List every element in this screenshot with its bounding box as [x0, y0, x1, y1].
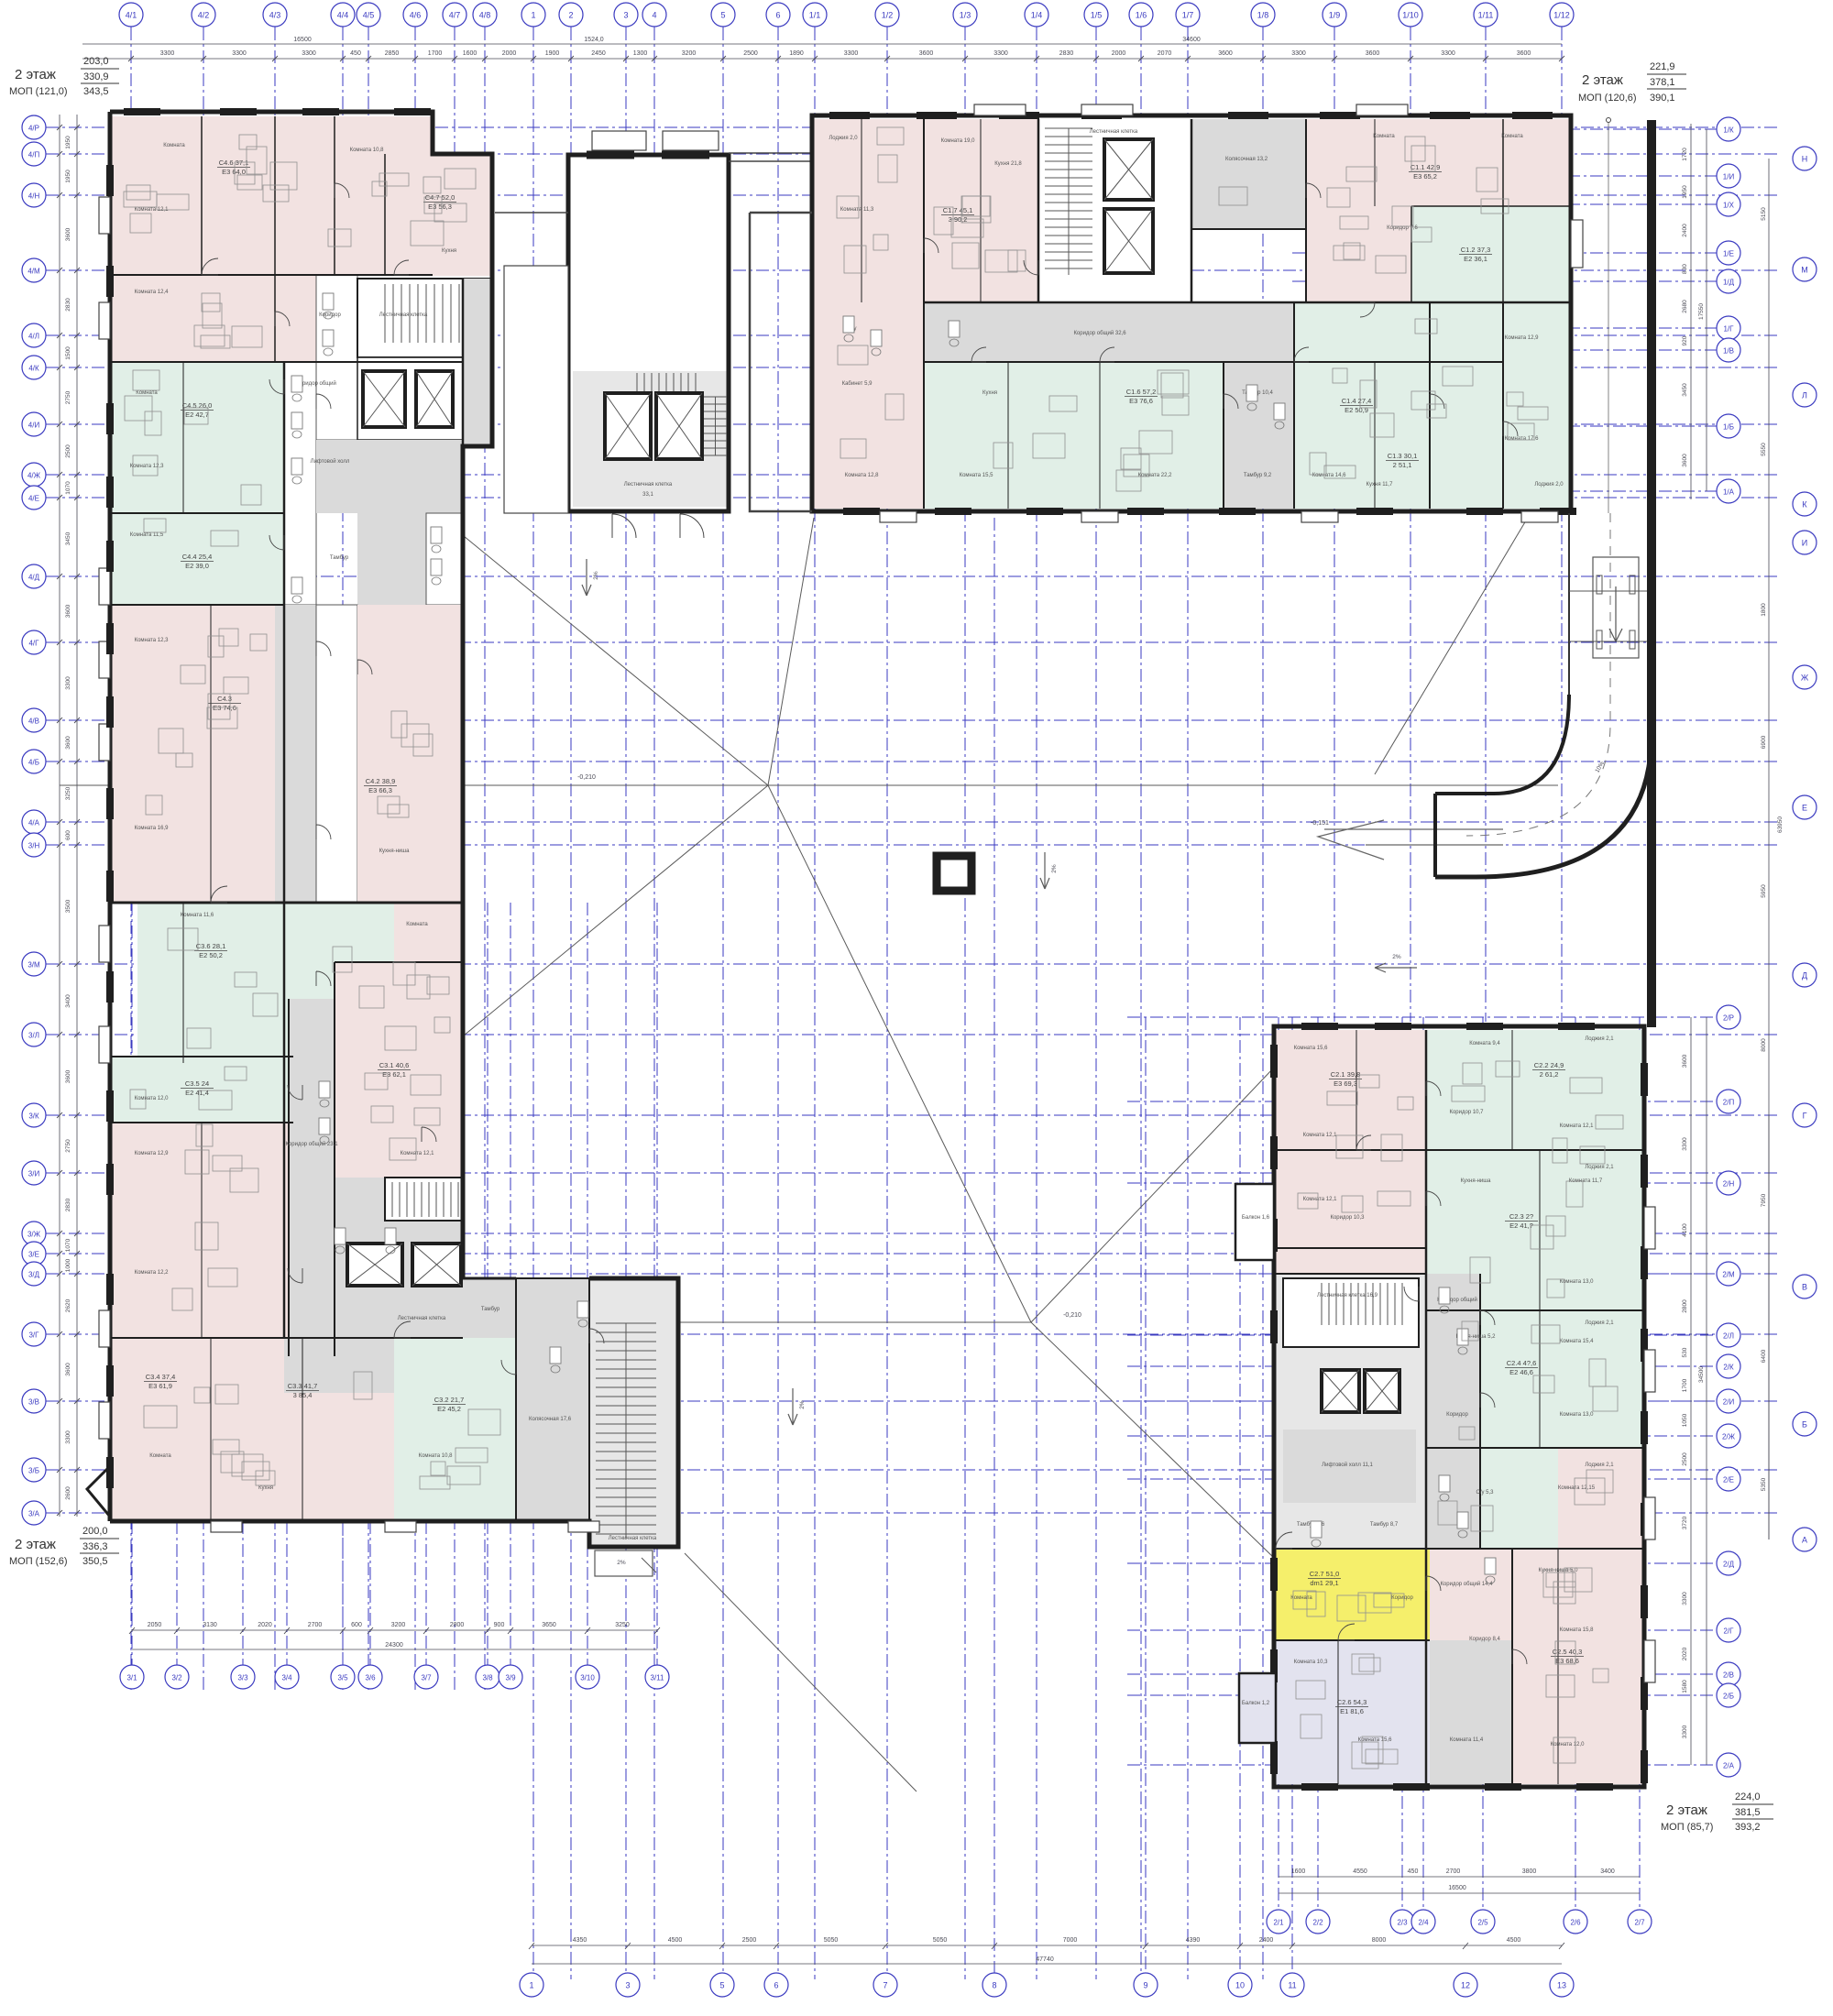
svg-text:С3.6 28,1: С3.6 28,1 — [196, 942, 226, 950]
svg-text:12: 12 — [1461, 1981, 1470, 1990]
svg-text:Комната 9,4: Комната 9,4 — [1469, 1041, 1500, 1046]
svg-text:Комната: Комната — [1290, 1595, 1312, 1601]
svg-text:2000: 2000 — [1112, 50, 1126, 57]
svg-text:3/Н: 3/Н — [28, 842, 40, 850]
svg-text:Е3 61,9: Е3 61,9 — [148, 1382, 172, 1390]
svg-text:3300: 3300 — [993, 50, 1008, 57]
svg-text:Комната 14,6: Комната 14,6 — [1312, 473, 1347, 478]
svg-text:Комната 12,0: Комната 12,0 — [1551, 1742, 1586, 1748]
svg-text:8000: 8000 — [1372, 1937, 1387, 1944]
svg-text:7950: 7950 — [1761, 1193, 1767, 1207]
svg-text:3300: 3300 — [232, 50, 247, 57]
svg-text:2070: 2070 — [1158, 50, 1172, 57]
svg-text:5550: 5550 — [1761, 443, 1767, 456]
svg-text:3600: 3600 — [1366, 50, 1380, 57]
svg-text:390,1: 390,1 — [1650, 93, 1675, 104]
svg-text:С1.2 37,3: С1.2 37,3 — [1461, 246, 1491, 254]
svg-text:С2.6 54,3: С2.6 54,3 — [1337, 1698, 1367, 1706]
svg-text:Комната 22,2: Комната 22,2 — [1138, 473, 1173, 478]
svg-text:4350: 4350 — [573, 1937, 587, 1944]
svg-text:1/9: 1/9 — [1329, 11, 1341, 20]
svg-text:3300: 3300 — [844, 50, 859, 57]
svg-text:1950: 1950 — [65, 170, 71, 183]
svg-text:3300: 3300 — [65, 676, 71, 690]
svg-text:1890: 1890 — [789, 50, 804, 57]
svg-text:3400: 3400 — [1600, 1868, 1615, 1875]
svg-text:К: К — [1802, 500, 1807, 509]
svg-text:2%: 2% — [617, 1560, 626, 1566]
svg-text:3600: 3600 — [919, 50, 934, 57]
svg-text:Коридор 8,4: Коридор 8,4 — [1469, 1637, 1500, 1642]
svg-text:Ж: Ж — [1801, 674, 1809, 683]
svg-text:3600: 3600 — [1517, 50, 1531, 57]
svg-text:1070: 1070 — [65, 481, 71, 495]
svg-text:2450: 2450 — [591, 50, 606, 57]
svg-text:МОП (85,7): МОП (85,7) — [1661, 1822, 1713, 1833]
svg-text:3250: 3250 — [615, 1622, 630, 1628]
svg-text:Б: Б — [1802, 1420, 1807, 1430]
svg-text:3/8: 3/8 — [482, 1674, 493, 1682]
svg-text:3300: 3300 — [1291, 50, 1306, 57]
svg-text:2400: 2400 — [1259, 1937, 1274, 1944]
svg-text:1300: 1300 — [633, 50, 648, 57]
svg-text:3/3: 3/3 — [237, 1674, 248, 1682]
svg-text:3: 3 — [625, 1981, 630, 1990]
svg-text:1/7: 1/7 — [1182, 11, 1194, 20]
svg-text:4/Ж: 4/Ж — [27, 472, 41, 480]
svg-text:Лоджия 2,1: Лоджия 2,1 — [1585, 1463, 1614, 1468]
svg-text:3600: 3600 — [65, 1363, 71, 1376]
svg-text:Комната 11,6: Комната 11,6 — [181, 913, 214, 918]
svg-text:24300: 24300 — [385, 1642, 403, 1649]
svg-text:4/Р: 4/Р — [28, 125, 39, 133]
svg-text:2/М: 2/М — [1722, 1271, 1735, 1279]
svg-text:С4.2 38,9: С4.2 38,9 — [366, 777, 396, 785]
svg-text:М: М — [1801, 266, 1808, 275]
svg-text:4/Д: 4/Д — [28, 574, 40, 582]
svg-text:1720: 1720 — [1682, 148, 1688, 161]
svg-text:С1.4 27,4: С1.4 27,4 — [1342, 397, 1372, 405]
svg-text:С3.1 40,6: С3.1 40,6 — [379, 1061, 410, 1069]
svg-text:Комната 12,3: Комната 12,3 — [135, 638, 170, 643]
svg-text:Коридор: Коридор — [1446, 1412, 1468, 1418]
svg-text:450: 450 — [1408, 1868, 1419, 1875]
svg-text:4/8: 4/8 — [479, 11, 491, 20]
svg-text:Комната 12,2: Комната 12,2 — [135, 1270, 170, 1276]
svg-text:17550: 17550 — [1698, 303, 1705, 320]
svg-text:2020: 2020 — [1682, 1647, 1688, 1660]
svg-text:200,0: 200,0 — [82, 1526, 108, 1537]
svg-text:Комната: Комната — [163, 143, 185, 148]
svg-text:3300: 3300 — [65, 1430, 71, 1444]
svg-text:7000: 7000 — [1063, 1937, 1078, 1944]
svg-text:1/Е: 1/Е — [1723, 250, 1734, 258]
svg-text:Лоджия 2,0: Лоджия 2,0 — [829, 136, 858, 141]
svg-text:4/Г: 4/Г — [28, 640, 39, 648]
svg-text:2/П: 2/П — [1723, 1099, 1735, 1107]
svg-text:2/2: 2/2 — [1312, 1919, 1323, 1927]
svg-text:900: 900 — [494, 1622, 505, 1628]
svg-text:Д: Д — [1802, 971, 1807, 981]
svg-text:3300: 3300 — [1682, 1725, 1688, 1738]
svg-text:С1.3 30,1: С1.3 30,1 — [1388, 452, 1418, 460]
svg-text:8: 8 — [992, 1981, 996, 1990]
svg-text:Тамбур 9,2: Тамбур 9,2 — [1244, 473, 1272, 478]
svg-text:1700: 1700 — [1682, 1378, 1688, 1392]
svg-text:Комната: Комната — [136, 390, 158, 396]
svg-text:4: 4 — [652, 11, 656, 20]
svg-text:С2.3 2?: С2.3 2? — [1509, 1212, 1533, 1221]
svg-text:1/Х: 1/Х — [1723, 202, 1735, 210]
svg-text:Комната 17,6: Комната 17,6 — [1505, 436, 1540, 442]
svg-text:3/Ж: 3/Ж — [27, 1231, 41, 1239]
svg-text:2050: 2050 — [148, 1622, 162, 1628]
svg-text:Кухня: Кухня — [442, 248, 456, 254]
svg-text:393,2: 393,2 — [1735, 1822, 1761, 1833]
svg-text:МОП (120,6): МОП (120,6) — [1578, 93, 1637, 104]
svg-text:3/9: 3/9 — [505, 1674, 516, 1682]
svg-text:С2.2 24,9: С2.2 24,9 — [1534, 1061, 1564, 1069]
svg-text:2 51,1: 2 51,1 — [1393, 461, 1412, 469]
svg-text:2500: 2500 — [742, 1937, 757, 1944]
svg-text:221,9: 221,9 — [1650, 61, 1675, 72]
svg-text:6900: 6900 — [1761, 735, 1767, 749]
svg-text:4/1: 4/1 — [126, 11, 137, 20]
svg-text:С2.4 4?,6: С2.4 4?,6 — [1507, 1359, 1537, 1367]
svg-text:Комната 12,0: Комната 12,0 — [135, 1096, 170, 1101]
svg-text:1/Д: 1/Д — [1723, 279, 1735, 287]
svg-text:2500: 2500 — [743, 50, 758, 57]
svg-text:Лестничная клетка: Лестничная клетка — [624, 482, 673, 488]
svg-text:1/Г: 1/Г — [1723, 325, 1734, 334]
svg-text:Комната 12,9: Комната 12,9 — [135, 1151, 170, 1156]
svg-text:2830: 2830 — [1059, 50, 1074, 57]
svg-text:4/Б: 4/Б — [28, 759, 39, 767]
svg-text:Комната 10,8: Комната 10,8 — [350, 148, 385, 153]
svg-text:2600: 2600 — [65, 1486, 71, 1500]
svg-text:Комната: Комната — [149, 1453, 171, 1459]
svg-text:3450: 3450 — [1682, 383, 1688, 397]
svg-text:2/Д: 2/Д — [1723, 1561, 1735, 1569]
svg-text:3/А: 3/А — [28, 1510, 40, 1518]
svg-text:2750: 2750 — [65, 390, 71, 404]
svg-text:Е2 36,1: Е2 36,1 — [1464, 255, 1487, 263]
svg-text:4/Е: 4/Е — [28, 495, 39, 503]
svg-text:Комната: Комната — [406, 922, 428, 927]
svg-text:5350: 5350 — [1761, 1477, 1767, 1491]
svg-text:Коридор: Коридор — [1391, 1595, 1413, 1601]
svg-text:3800: 3800 — [1522, 1868, 1537, 1875]
svg-text:Лоджия 2,1: Лоджия 2,1 — [1585, 1165, 1614, 1170]
svg-text:4/4: 4/4 — [337, 11, 349, 20]
svg-text:2/Л: 2/Л — [1723, 1332, 1734, 1341]
svg-text:С4.5 26,0: С4.5 26,0 — [182, 401, 213, 410]
svg-text:3130: 3130 — [203, 1622, 217, 1628]
svg-text:2700: 2700 — [308, 1622, 323, 1628]
svg-text:Лестничная клетка: Лестничная клетка — [379, 312, 428, 318]
svg-text:2%: 2% — [799, 1400, 806, 1409]
svg-text:4/7: 4/7 — [449, 11, 461, 20]
svg-text:Комната 12,8: Комната 12,8 — [845, 473, 880, 478]
svg-text:2850: 2850 — [385, 50, 400, 57]
svg-text:450: 450 — [350, 50, 361, 57]
svg-text:3/10: 3/10 — [580, 1674, 595, 1682]
svg-text:Е2 46,6: Е2 46,6 — [1509, 1368, 1533, 1376]
svg-text:1/11: 1/11 — [1478, 11, 1494, 20]
svg-text:3300: 3300 — [1682, 1137, 1688, 1151]
svg-text:2500: 2500 — [1682, 1452, 1688, 1466]
svg-text:3/В: 3/В — [28, 1398, 39, 1407]
svg-text:Тамбур: Тамбур — [330, 555, 349, 561]
svg-text:2/4: 2/4 — [1418, 1919, 1429, 1927]
svg-text:830: 830 — [1682, 264, 1688, 274]
svg-text:1500: 1500 — [65, 346, 71, 360]
svg-text:1070: 1070 — [65, 1238, 71, 1252]
svg-text:330,9: 330,9 — [83, 71, 109, 82]
svg-text:Комната 12,4: Комната 12,4 — [135, 290, 170, 295]
svg-text:3300: 3300 — [1682, 1592, 1688, 1605]
svg-text:Е2 50,2: Е2 50,2 — [199, 951, 223, 959]
svg-text:Е2 50,9: Е2 50,9 — [1345, 406, 1368, 414]
svg-text:3/6: 3/6 — [365, 1674, 376, 1682]
svg-text:1/10: 1/10 — [1402, 11, 1419, 20]
svg-text:2/Н: 2/Н — [1723, 1180, 1735, 1189]
svg-text:Комната 12,1: Комната 12,1 — [1560, 1123, 1595, 1129]
svg-text:Коридор 10,7: Коридор 10,7 — [1449, 1110, 1484, 1115]
svg-text:1000: 1000 — [65, 1258, 71, 1272]
svg-text:6: 6 — [775, 11, 780, 20]
svg-text:3/5: 3/5 — [337, 1674, 348, 1682]
svg-text:В: В — [1802, 1283, 1807, 1292]
svg-text:3600: 3600 — [1218, 50, 1233, 57]
svg-text:8000: 8000 — [1761, 1038, 1767, 1052]
svg-text:3600: 3600 — [65, 604, 71, 618]
svg-text:Кухня: Кухня — [982, 390, 997, 396]
svg-text:2/6: 2/6 — [1570, 1919, 1581, 1927]
svg-text:С2.1 39,8: С2.1 39,8 — [1331, 1070, 1361, 1079]
svg-text:1950: 1950 — [65, 136, 71, 149]
svg-text:9: 9 — [1143, 1981, 1147, 1990]
svg-text:1524,0: 1524,0 — [584, 37, 604, 43]
svg-text:3500: 3500 — [65, 899, 71, 913]
svg-text:203,0: 203,0 — [83, 56, 109, 67]
svg-text:С3.3 41,7: С3.3 41,7 — [288, 1382, 318, 1390]
svg-text:2800: 2800 — [1682, 1299, 1688, 1313]
svg-text:5: 5 — [720, 11, 725, 20]
svg-text:С2.7 51,0: С2.7 51,0 — [1310, 1570, 1340, 1578]
svg-text:2/В: 2/В — [1723, 1671, 1734, 1680]
svg-text:И: И — [1802, 539, 1807, 548]
svg-text:2 этаж: 2 этаж — [15, 67, 56, 82]
svg-text:3200: 3200 — [682, 50, 697, 57]
svg-text:2/А: 2/А — [1723, 1762, 1735, 1770]
svg-text:34500: 34500 — [1698, 1366, 1705, 1383]
svg-text:5050: 5050 — [933, 1937, 948, 1944]
svg-text:2/Ж: 2/Ж — [1722, 1433, 1736, 1441]
svg-text:3600: 3600 — [65, 736, 71, 750]
svg-text:2020: 2020 — [258, 1622, 272, 1628]
svg-text:3/11: 3/11 — [651, 1674, 665, 1682]
svg-text:2/К: 2/К — [1723, 1364, 1734, 1372]
svg-text:3/Е: 3/Е — [28, 1251, 39, 1259]
svg-text:Н: Н — [1802, 155, 1808, 164]
svg-text:С3.5 24: С3.5 24 — [185, 1079, 209, 1088]
svg-text:Е3 62,1: Е3 62,1 — [382, 1070, 406, 1079]
svg-text:4/В: 4/В — [28, 718, 39, 726]
svg-text:3600: 3600 — [1682, 454, 1688, 467]
svg-text:Кухня 11,7: Кухня 11,7 — [1367, 482, 1394, 488]
svg-text:Кухня-ниша: Кухня-ниша — [1461, 1178, 1492, 1184]
svg-text:Е3 69,3: Е3 69,3 — [1334, 1079, 1357, 1088]
svg-text:Е2 39,0: Е2 39,0 — [185, 562, 209, 570]
svg-text:2/3: 2/3 — [1397, 1919, 1408, 1927]
svg-text:1/12: 1/12 — [1553, 11, 1570, 20]
svg-text:Е2 41,4: Е2 41,4 — [185, 1089, 209, 1097]
svg-text:33,1: 33,1 — [642, 492, 653, 498]
svg-text:224,0: 224,0 — [1735, 1791, 1761, 1802]
svg-text:1600: 1600 — [1291, 1868, 1306, 1875]
svg-text:Колясочная 13,2: Колясочная 13,2 — [1225, 157, 1268, 162]
svg-text:5050: 5050 — [824, 1937, 839, 1944]
svg-text:-0,210: -0,210 — [577, 774, 596, 781]
svg-text:2/Р: 2/Р — [1723, 1014, 1734, 1023]
svg-text:Лестничная клетка 16,9: Лестничная клетка 16,9 — [1317, 1293, 1378, 1298]
svg-text:5: 5 — [719, 1981, 724, 1990]
svg-text:1/И: 1/И — [1723, 173, 1735, 181]
svg-text:Е3 74,6: Е3 74,6 — [213, 704, 236, 712]
svg-text:4/А: 4/А — [28, 819, 40, 827]
svg-text:2 этаж: 2 этаж — [15, 1537, 56, 1552]
svg-text:2/Е: 2/Е — [1723, 1476, 1734, 1485]
svg-text:2/5: 2/5 — [1477, 1919, 1488, 1927]
svg-text:2/7: 2/7 — [1634, 1919, 1645, 1927]
svg-text:Комната 19,0: Комната 19,0 — [941, 138, 976, 144]
svg-text:1580: 1580 — [1682, 1680, 1688, 1693]
svg-text:4550: 4550 — [1353, 1868, 1367, 1875]
svg-text:2 этаж: 2 этаж — [1582, 72, 1623, 88]
svg-text:2/И: 2/И — [1723, 1398, 1735, 1407]
svg-text:4/М: 4/М — [27, 268, 40, 276]
svg-text:Коридор общий 23,1: Коридор общий 23,1 — [285, 1141, 338, 1147]
svg-text:МОП (121,0): МОП (121,0) — [9, 86, 68, 97]
svg-text:Лифтовой холл 11,1: Лифтовой холл 11,1 — [1322, 1462, 1373, 1468]
svg-text:3720: 3720 — [1682, 1516, 1688, 1529]
svg-text:343,5: 343,5 — [83, 86, 109, 97]
svg-text:1/2: 1/2 — [882, 11, 894, 20]
svg-text:С2.5 40,3: С2.5 40,3 — [1553, 1648, 1583, 1656]
svg-text:Комната 11,4: Комната 11,4 — [1450, 1737, 1484, 1743]
svg-text:Комната 15,4: Комната 15,4 — [1560, 1339, 1595, 1344]
svg-text:Е3 76,6: Е3 76,6 — [1129, 397, 1153, 405]
svg-text:2: 2 — [568, 11, 573, 20]
svg-text:47740: 47740 — [1036, 1956, 1054, 1963]
svg-text:2%: 2% — [593, 571, 599, 580]
svg-text:Кабинет 5,9: Кабинет 5,9 — [842, 381, 873, 387]
svg-text:4/6: 4/6 — [410, 11, 422, 20]
svg-text:3250: 3250 — [65, 786, 71, 800]
svg-text:Кухня-ниша: Кухня-ниша — [379, 849, 411, 854]
svg-text:63950: 63950 — [1777, 816, 1784, 833]
svg-text:1/8: 1/8 — [1257, 11, 1269, 20]
svg-text:34600: 34600 — [1182, 37, 1201, 43]
svg-text:3300: 3300 — [1441, 50, 1455, 57]
svg-text:3/И: 3/И — [28, 1170, 40, 1178]
svg-text:1600: 1600 — [463, 50, 477, 57]
svg-text:2500: 2500 — [65, 444, 71, 458]
svg-text:3: 3 — [623, 11, 628, 20]
svg-text:4/5: 4/5 — [363, 11, 375, 20]
svg-text:4/К: 4/К — [28, 365, 39, 373]
svg-text:Комната 12,15: Комната 12,15 — [1558, 1485, 1596, 1491]
svg-text:Комната 13,0: Комната 13,0 — [1560, 1412, 1595, 1418]
svg-text:Лестничная клетка: Лестничная клетка — [1090, 129, 1138, 135]
svg-text:920: 920 — [1682, 335, 1688, 345]
svg-text:МОП (152,6): МОП (152,6) — [9, 1556, 68, 1567]
svg-text:Е2 45,2: Е2 45,2 — [437, 1405, 461, 1413]
svg-text:С4.3: С4.3 — [217, 695, 232, 703]
svg-text:1900: 1900 — [545, 50, 560, 57]
svg-text:1/Б: 1/Б — [1723, 423, 1734, 432]
svg-text:Лоджия 2,0: Лоджия 2,0 — [1534, 482, 1564, 488]
svg-text:Л: Л — [1802, 391, 1807, 400]
svg-text:1950: 1950 — [1682, 185, 1688, 199]
svg-text:Е3 66,3: Е3 66,3 — [368, 786, 392, 794]
svg-text:378,1: 378,1 — [1650, 77, 1675, 88]
svg-text:Лоджия 2,1: Лоджия 2,1 — [1585, 1320, 1614, 1326]
svg-text:13: 13 — [1557, 1981, 1566, 1990]
svg-text:2680: 2680 — [1682, 300, 1688, 313]
svg-text:1/3: 1/3 — [960, 11, 971, 20]
svg-text:Комната 12,1: Комната 12,1 — [1303, 1197, 1338, 1202]
svg-text:600: 600 — [65, 830, 71, 840]
svg-text:2400: 2400 — [1682, 224, 1688, 237]
svg-text:Тамбур: Тамбур — [481, 1307, 500, 1312]
svg-text:1800: 1800 — [1761, 603, 1767, 617]
svg-text:С3.2 21,7: С3.2 21,7 — [434, 1396, 465, 1404]
svg-text:4/Н: 4/Н — [28, 192, 40, 201]
svg-text:2800: 2800 — [450, 1622, 465, 1628]
svg-text:Лестничная клетка: Лестничная клетка — [398, 1316, 446, 1321]
svg-text:Коридор: Коридор — [319, 312, 341, 318]
svg-text:Г: Г — [1803, 1112, 1807, 1121]
svg-text:10: 10 — [1235, 1981, 1245, 1990]
svg-text:336,3: 336,3 — [82, 1541, 108, 1552]
svg-text:6400: 6400 — [1761, 1349, 1767, 1363]
svg-text:Комната 15,5: Комната 15,5 — [960, 473, 994, 478]
svg-text:Комната 12,3: Комната 12,3 — [130, 464, 165, 469]
svg-text:3300: 3300 — [302, 50, 316, 57]
svg-text:-0,151: -0,151 — [1311, 820, 1329, 827]
svg-text:16500: 16500 — [1448, 1885, 1466, 1891]
svg-text:3400: 3400 — [65, 994, 71, 1008]
svg-text:2700: 2700 — [1446, 1868, 1461, 1875]
svg-text:Комната 12,9: Комната 12,9 — [1505, 335, 1540, 341]
svg-text:3600: 3600 — [65, 227, 71, 241]
svg-text:4/Л: 4/Л — [28, 333, 39, 341]
svg-text:Коридор общий 32,6: Коридор общий 32,6 — [1073, 330, 1126, 336]
svg-text:2750: 2750 — [65, 1139, 71, 1153]
svg-text:4/П: 4/П — [28, 151, 40, 159]
svg-text:Комната 15,8: Комната 15,8 — [1560, 1627, 1595, 1633]
svg-text:3/4: 3/4 — [281, 1674, 292, 1682]
svg-text:1/5: 1/5 — [1091, 11, 1103, 20]
svg-text:3450: 3450 — [65, 531, 71, 545]
svg-text:600: 600 — [351, 1622, 362, 1628]
svg-text:2830: 2830 — [65, 298, 71, 312]
svg-text:Комната 11,3: Комната 11,3 — [840, 207, 874, 213]
svg-text:3/Л: 3/Л — [28, 1032, 39, 1040]
svg-text:5950: 5950 — [1761, 884, 1767, 898]
